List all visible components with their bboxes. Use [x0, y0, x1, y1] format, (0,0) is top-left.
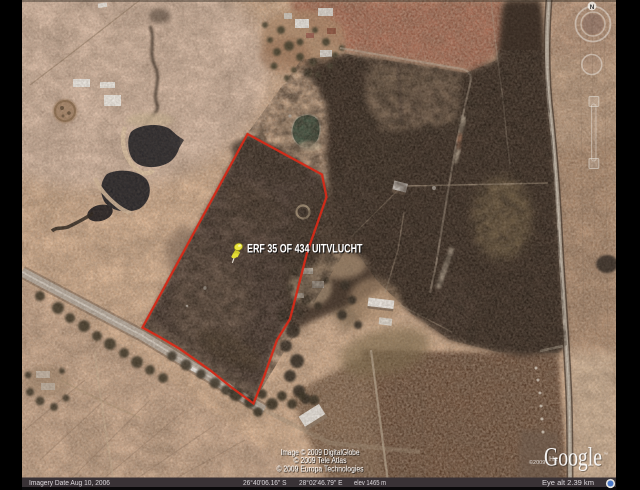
svg-text:28°02'46.79" E: 28°02'46.79" E	[299, 478, 343, 487]
svg-text:26°40'06.16" S: 26°40'06.16" S	[243, 478, 287, 487]
svg-text:He: He	[549, 456, 558, 463]
svg-text:© 2009 Europa Technologies: © 2009 Europa Technologies	[277, 465, 364, 474]
svg-text:ERF 35 OF 434 UITVLUCHT: ERF 35 OF 434 UITVLUCHT	[247, 244, 363, 256]
svg-text:N: N	[590, 4, 595, 11]
svg-text:Imagery Date Aug 10, 2006: Imagery Date Aug 10, 2006	[29, 478, 110, 487]
svg-text:Eye alt 2.39 km: Eye alt 2.39 km	[542, 478, 594, 487]
svg-text:©2009: ©2009	[529, 459, 545, 466]
svg-text:™: ™	[603, 452, 608, 458]
svg-text:elev 1465 m: elev 1465 m	[354, 478, 386, 487]
